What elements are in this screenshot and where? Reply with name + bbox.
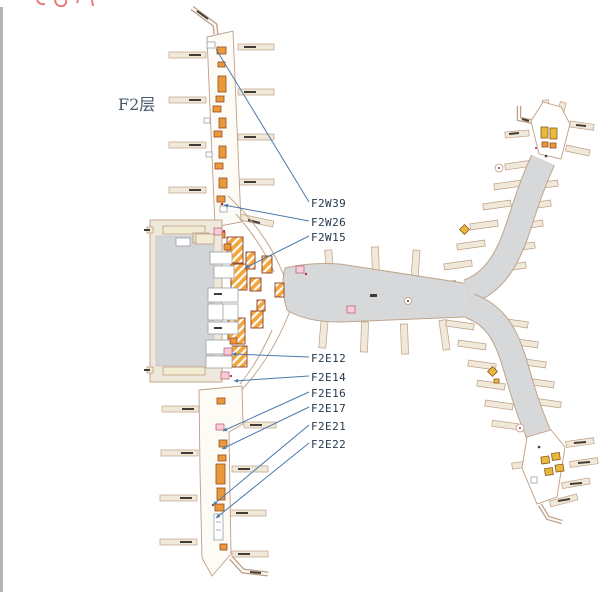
- floor-title: F2层: [118, 95, 155, 114]
- gate-label-f2e17[interactable]: F2E17: [311, 402, 346, 415]
- gate-label-f2e21[interactable]: F2E21: [311, 420, 346, 433]
- floorplan-map: F2层: [0, 0, 600, 592]
- southeast-head: [512, 430, 599, 522]
- gate-label-f2w39[interactable]: F2W39: [311, 197, 346, 210]
- south-pier-left-bridges: [160, 406, 199, 545]
- north-pier-left-bridges: [169, 52, 206, 193]
- northeast-head: [505, 100, 594, 159]
- gate-label-f2e22[interactable]: F2E22: [311, 438, 346, 451]
- gate-label-f2e14[interactable]: F2E14: [311, 371, 346, 384]
- gate-label-f2e12[interactable]: F2E12: [311, 352, 346, 365]
- gate-label-f2w26[interactable]: F2W26: [311, 216, 346, 229]
- gate-label-f2w15[interactable]: F2W15: [311, 231, 346, 244]
- clipped-red-header-text: [37, 0, 93, 6]
- floorplan-window: F2层: [0, 0, 600, 592]
- gate-label-f2e16[interactable]: F2E16: [311, 387, 346, 400]
- north-pier: [169, 8, 274, 238]
